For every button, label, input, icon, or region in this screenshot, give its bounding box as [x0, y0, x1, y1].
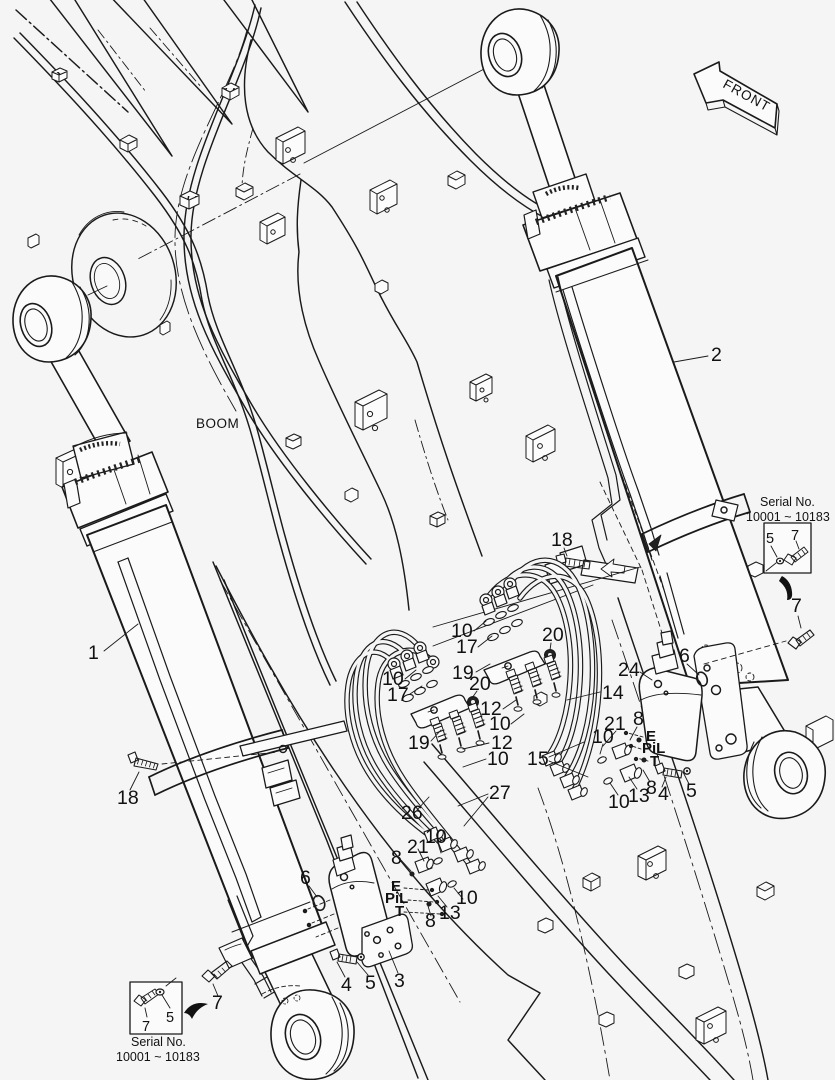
svg-text:7: 7	[791, 595, 802, 617]
svg-text:17: 17	[456, 636, 478, 658]
svg-text:T: T	[395, 903, 404, 920]
svg-text:20: 20	[542, 624, 564, 646]
svg-text:21: 21	[407, 836, 429, 858]
svg-text:7: 7	[142, 1019, 150, 1035]
svg-text:13: 13	[439, 902, 461, 924]
svg-text:2: 2	[711, 344, 722, 366]
svg-text:8: 8	[633, 708, 644, 730]
svg-text:5: 5	[766, 531, 774, 547]
svg-text:8: 8	[425, 910, 436, 932]
svg-text:T: T	[650, 753, 659, 770]
svg-text:3: 3	[394, 970, 405, 992]
svg-text:18: 18	[117, 787, 139, 809]
svg-text:24: 24	[618, 659, 640, 681]
svg-text:5: 5	[166, 1010, 174, 1026]
svg-text:19: 19	[408, 732, 430, 754]
svg-text:6: 6	[679, 645, 690, 667]
svg-text:7: 7	[212, 992, 223, 1014]
svg-text:8: 8	[646, 777, 657, 799]
svg-text:10001 ~ 10183: 10001 ~ 10183	[116, 1050, 200, 1064]
svg-text:10: 10	[592, 726, 614, 748]
svg-text:5: 5	[686, 780, 697, 802]
svg-text:18: 18	[551, 529, 573, 551]
svg-text:17: 17	[387, 684, 409, 706]
svg-text:10: 10	[487, 748, 509, 770]
svg-text:1: 1	[88, 642, 99, 664]
svg-text:4: 4	[341, 974, 352, 996]
svg-text:10001 ~ 10183: 10001 ~ 10183	[746, 510, 830, 524]
svg-text:5: 5	[365, 972, 376, 994]
svg-text:14: 14	[602, 682, 624, 704]
svg-text:26: 26	[401, 802, 423, 824]
svg-text:7: 7	[791, 528, 799, 544]
svg-text:8: 8	[391, 847, 402, 869]
svg-text:Serial No.: Serial No.	[760, 495, 815, 509]
svg-text:15: 15	[527, 748, 549, 770]
svg-text:4: 4	[658, 783, 669, 805]
svg-text:27: 27	[489, 782, 511, 804]
svg-text:6: 6	[300, 867, 311, 889]
svg-text:BOOM: BOOM	[196, 416, 239, 431]
svg-text:Serial No.: Serial No.	[131, 1035, 186, 1049]
svg-text:10: 10	[608, 791, 630, 813]
svg-text:20: 20	[469, 673, 491, 695]
